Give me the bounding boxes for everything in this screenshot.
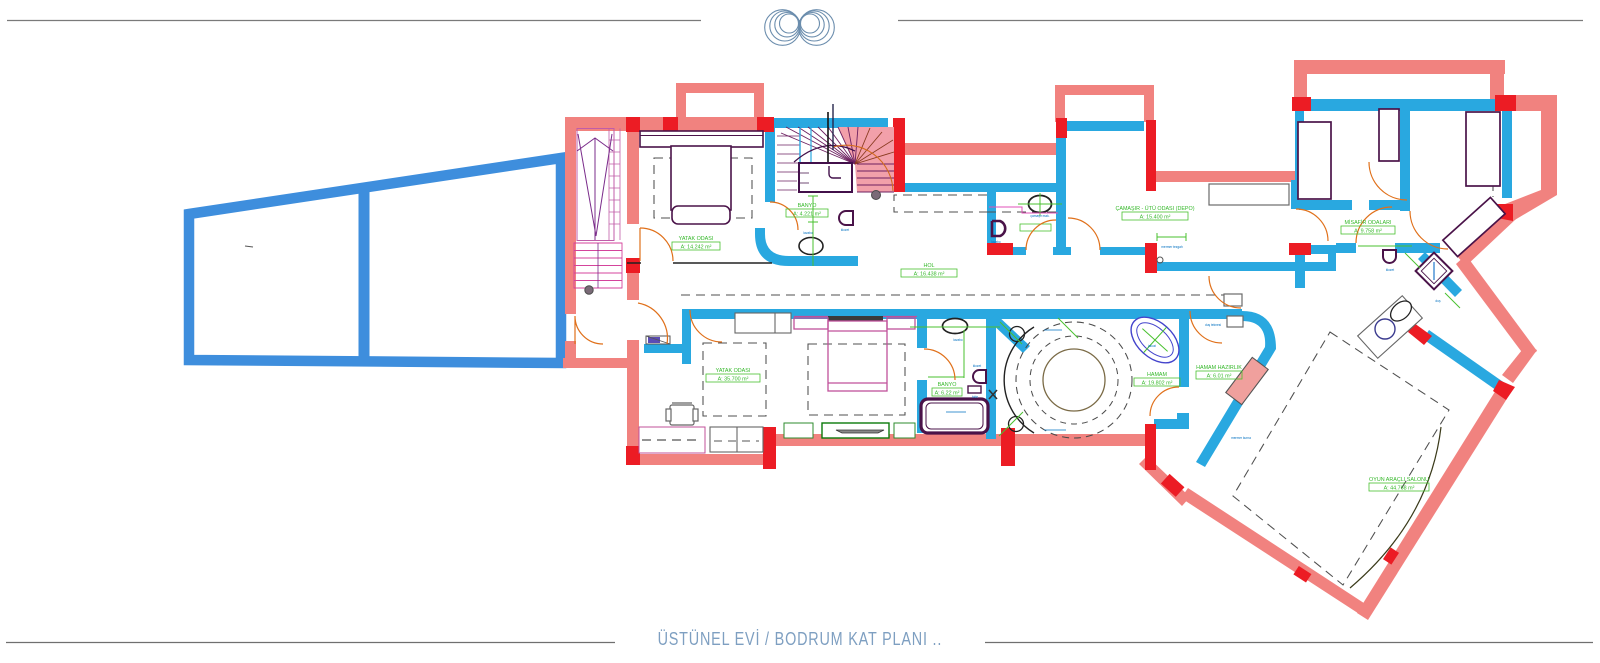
svg-text:A: 15.400 m²: A: 15.400 m² — [1140, 215, 1171, 221]
svg-text:HAMAM: HAMAM — [1147, 372, 1168, 378]
svg-text:lavabo: lavabo — [953, 338, 963, 342]
svg-text:BANYO: BANYO — [798, 203, 817, 209]
svg-text:klozet: klozet — [841, 228, 849, 232]
svg-text:MİSAFİR ODALARI: MİSAFİR ODALARI — [1344, 219, 1391, 226]
svg-text:A: 4.221 m²: A: 4.221 m² — [793, 212, 821, 218]
svg-text:duş: duş — [1435, 299, 1441, 303]
svg-text:YATAK ODASI: YATAK ODASI — [716, 368, 751, 374]
svg-text:A: 14.242 m²: A: 14.242 m² — [681, 245, 712, 251]
svg-text:ÇAMAŞIR - ÜTÜ ODASI (DEPO): ÇAMAŞIR - ÜTÜ ODASI (DEPO) — [1115, 205, 1194, 212]
svg-text:A: 19.802 m²: A: 19.802 m² — [1142, 381, 1173, 387]
svg-text:klozet: klozet — [1386, 268, 1394, 272]
svg-text:klozet: klozet — [973, 364, 981, 368]
svg-text:lavabo: lavabo — [991, 240, 1001, 244]
svg-text:HAMAM HAZIRLIK: HAMAM HAZIRLIK — [1196, 365, 1242, 371]
svg-text:mermer tezgah: mermer tezgah — [1161, 245, 1183, 249]
svg-text:A: 6.01 m²: A: 6.01 m² — [1207, 374, 1232, 380]
svg-text:A: 16.438 m²: A: 16.438 m² — [914, 272, 945, 278]
svg-text:A: 9.758 m²: A: 9.758 m² — [1354, 229, 1382, 235]
svg-text:A: 35.700 m²: A: 35.700 m² — [718, 377, 749, 383]
svg-text:jakuzi: jakuzi — [1147, 344, 1156, 348]
svg-text:duş teknesi: duş teknesi — [1205, 323, 1221, 327]
svg-text:YATAK ODASI: YATAK ODASI — [679, 236, 714, 242]
svg-text:mermer kurna: mermer kurna — [1231, 436, 1251, 440]
svg-text:BANYO: BANYO — [938, 382, 957, 388]
svg-text:çamaşır mak.: çamaşır mak. — [1030, 214, 1049, 218]
svg-text:bide: bide — [972, 395, 978, 399]
svg-text:HOL: HOL — [923, 263, 934, 269]
svg-text:A: 6.22 m²: A: 6.22 m² — [935, 391, 960, 397]
svg-text:A: 44.768 m²: A: 44.768 m² — [1384, 486, 1415, 492]
svg-text:lavabo: lavabo — [803, 231, 813, 235]
svg-text:OYUN ARAÇLI SALONU: OYUN ARAÇLI SALONU — [1369, 477, 1429, 483]
